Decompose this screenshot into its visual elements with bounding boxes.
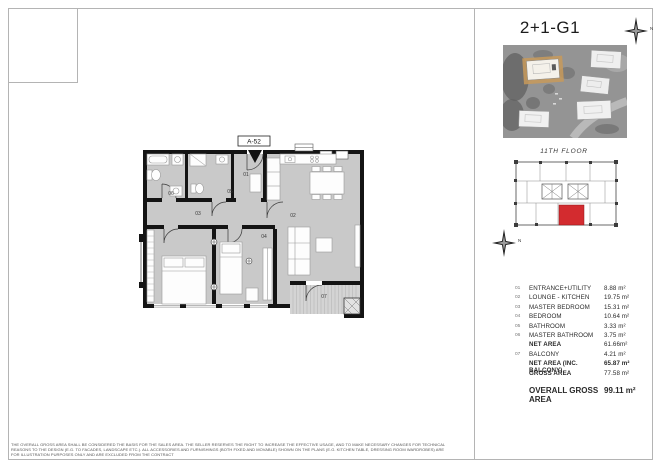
desk: [246, 288, 258, 301]
room-label-06: 06: [168, 191, 174, 197]
table-row: 04BEDROOM10.64 m²: [515, 313, 648, 322]
table-row-net-area: NET AREA61.66m²: [515, 341, 648, 350]
bathtub: [147, 154, 169, 165]
keyplan-floor-label: 11TH FLOOR: [475, 148, 653, 155]
utility-closet: [250, 174, 261, 192]
room-label-07: 07: [321, 294, 327, 300]
overall-label: OVERALL GROSS AREA: [529, 386, 604, 404]
coffee-table: [316, 238, 332, 252]
site-aerial-image: [503, 45, 627, 138]
disclaimer-text: THE OVERALL GROSS AREA SHALL BE CONSIDER…: [11, 443, 449, 458]
keyplan-north-label: N: [518, 238, 521, 243]
keyplan: [510, 157, 622, 231]
keyplan-compass-icon: N: [490, 228, 524, 258]
shower: [190, 154, 206, 166]
sink-2: [216, 155, 228, 164]
room-label-01: 01: [243, 172, 249, 178]
master-wardrobe: [147, 230, 154, 302]
table-row: 02LOUNGE - KITCHEN19.75 m²: [515, 294, 648, 303]
area-table: 01ENTRANCE+UTILITY8.88 m² 02LOUNGE - KIT…: [515, 285, 648, 404]
page-title: 2+1-G1: [475, 18, 625, 38]
table-row: 06MASTER BATHROOM3.75 m²: [515, 332, 648, 341]
toilet: [147, 170, 161, 181]
washing-machine: [172, 154, 183, 165]
kitchen-counter: [280, 154, 336, 164]
panel-divider: [474, 8, 475, 459]
master-bed: [162, 256, 206, 304]
wardrobe: [263, 248, 272, 300]
toilet-2: [191, 184, 204, 194]
dining-table: [310, 167, 344, 200]
highlighted-unit: [559, 205, 584, 225]
tv-unit: [355, 225, 360, 267]
compass-north-label: N: [650, 26, 653, 31]
overall-value: 99.11 m²: [604, 386, 648, 404]
table-row-net-area-inc: NET AREA (INC. BALCONY)65.87 m²: [515, 360, 648, 369]
kitchen-tall-units: [267, 158, 280, 200]
table-row: 03MASTER BEDROOM15.31 m²: [515, 304, 648, 313]
compass-icon: N: [622, 16, 656, 46]
highlighted-building: [522, 56, 564, 85]
table-row: 07BALCONY4.21 m²: [515, 351, 648, 360]
balcony-door-opening: [306, 281, 322, 285]
sofa: [288, 227, 310, 275]
room-label-04: 04: [261, 234, 267, 240]
room-label-02: 02: [290, 213, 296, 219]
apartment-floorplan: A-52: [128, 130, 378, 330]
table-row-gross-area: GROSS AREA77.58 m²: [515, 370, 648, 379]
table-row: 05BATHROOM3.33 m²: [515, 323, 648, 332]
unit-tag: A-52: [238, 136, 270, 146]
room-label-03: 03: [195, 211, 201, 217]
unit-tag-label: A-52: [247, 139, 261, 146]
table-row: 01ENTRANCE+UTILITY8.88 m²: [515, 285, 648, 294]
room-label-05: 05: [227, 189, 233, 195]
floorplan-sheet: { "header": { "title": "2+1-G1", "north_…: [0, 0, 660, 467]
logo-placeholder: [8, 8, 78, 83]
overall-gross-area-row: OVERALL GROSS AREA 99.11 m²: [515, 386, 648, 404]
balcony-shaft: [344, 298, 360, 314]
bed: [220, 242, 242, 294]
